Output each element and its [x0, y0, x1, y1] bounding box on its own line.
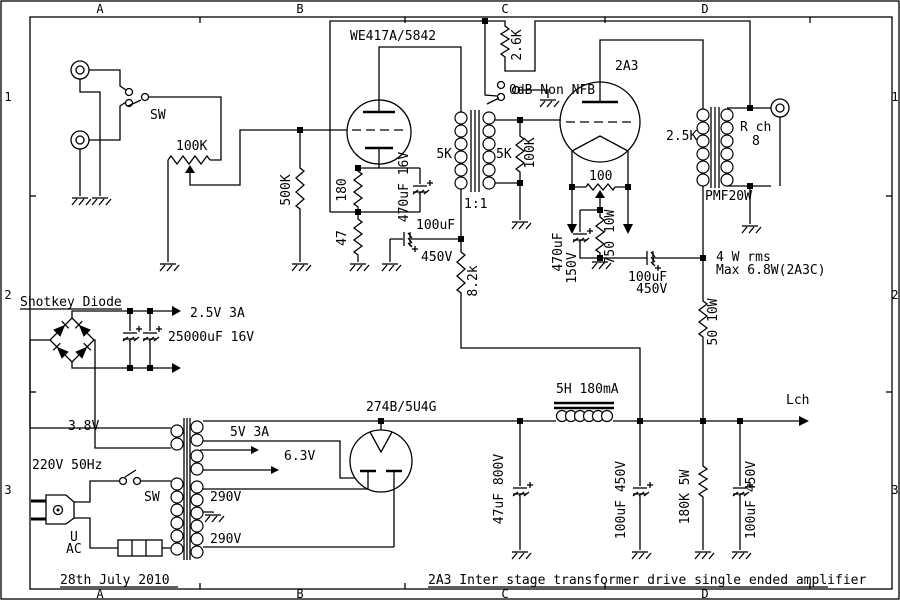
schematic-canvas: A B C D A B C D 1 2 3 1 2 3 28th July 20…: [0, 0, 900, 600]
fuse: [118, 540, 162, 556]
out-left-label: Lch: [786, 393, 809, 408]
cathode-cap-470uf: [413, 186, 429, 194]
heater-arrow: [271, 466, 279, 474]
ground-symbol: [382, 264, 401, 271]
grid-col-c-top: C: [501, 2, 508, 16]
grid-row-3-left: 3: [4, 483, 11, 497]
2a3-label: 2A3: [615, 59, 638, 74]
hum-pot-label: 100: [589, 169, 612, 184]
supply-arrow: [172, 363, 181, 373]
filament-supply-label: 2.5V 3A: [190, 306, 245, 321]
ground-symbol: [512, 222, 531, 229]
input-jack-1: [71, 61, 89, 79]
cathode-r2-label: 47: [335, 230, 350, 246]
ground-symbol: [350, 264, 369, 271]
ground-symbol: [540, 100, 559, 107]
out-channel-label: R ch: [740, 120, 771, 135]
supply-arrow: [172, 306, 181, 316]
ground-symbol: [92, 198, 111, 205]
opt-model-label: PMF20W: [705, 189, 752, 204]
grid-col-d-bottom: D: [701, 587, 708, 600]
filament-cap: [123, 333, 139, 341]
schematic-page: A B C D A B C D 1 2 3 1 2 3 28th July 20…: [0, 0, 900, 600]
winding-5-label: 5V 3A: [230, 425, 269, 440]
cathode-c3-voltage: 150V: [565, 252, 580, 283]
grid-col-b-top: B: [296, 2, 303, 16]
rect-tube-label: 274B/5U4G: [366, 400, 437, 415]
input-jack-2: [71, 131, 89, 149]
decouple-r2-label: 50 10W: [706, 298, 721, 345]
filter-cap-100uf-b: 100uF 450V: [732, 421, 759, 559]
rectifier-label: Shotkey Diode: [20, 295, 122, 310]
selector-lever: [128, 100, 141, 106]
mains-label: 220V 50Hz: [32, 458, 102, 473]
grid-col-a-top: A: [96, 2, 104, 16]
lch-arrow: [799, 416, 809, 426]
decouple-c1-value: 100uF: [416, 218, 455, 233]
ground-symbol: [205, 515, 224, 522]
winding-63-label: 6.3V: [284, 449, 315, 464]
title-text: 2A3 Inter stage transformer drive single…: [428, 573, 866, 588]
filter-c1-label: 47uF 800V: [492, 454, 507, 525]
ground-symbol: [512, 552, 531, 559]
ground-symbol: [732, 552, 751, 559]
grid-col-d-top: D: [701, 2, 708, 16]
filament: [370, 432, 392, 452]
grid-r1-label: 500K: [279, 174, 294, 205]
we417a-label: WE417A/5842: [350, 29, 436, 44]
grid-row-2-right: 2: [891, 288, 898, 302]
grid-row-3-right: 3: [891, 483, 898, 497]
winding-38-label: 3.8V: [68, 419, 99, 434]
date-text: 28th July 2010: [60, 573, 170, 588]
choke: 5H 180mA: [554, 382, 619, 422]
bplus-rail: Lch 5H 180mA 47uF 800V 100uF 450V 180K 5…: [203, 382, 809, 559]
volume-pot-label: 100K: [176, 139, 207, 154]
speaker-jack: [771, 99, 789, 117]
it-ratio-label: 1:1: [464, 197, 487, 212]
cathode-c3-value: 470uF: [551, 232, 566, 271]
decouple-cap-100uf: [404, 232, 412, 247]
grid-resistor-500k: 500K: [279, 127, 311, 271]
filament: [572, 136, 628, 151]
mains-plug: [46, 495, 74, 524]
drop-r-label: 8.2k: [466, 265, 481, 296]
it-primary-label: 5K: [436, 147, 452, 162]
input-section: SW: [71, 61, 221, 205]
grid-r2-label: 100K: [523, 137, 538, 168]
cathode-network-2a3: 100 470uF 150V 750 10W 100uF 450V: [551, 169, 703, 297]
volume-pot: 100K: [160, 130, 347, 271]
bleeder-resistor: 180K 5W: [678, 421, 714, 559]
wiper-arrow: [595, 190, 605, 198]
shotkey-bridge: Shotkey Diode 2.5V 3A 25000uF 16V 3.8V: [20, 295, 254, 448]
plug-label-ac: AC: [66, 542, 82, 557]
power-transformer: 5V 3A 6.3V 290V 290V: [171, 418, 394, 560]
out-impedance-label: 8: [752, 134, 760, 149]
winding-290a-label: 290V: [210, 490, 241, 505]
drawing-frame: A B C D A B C D 1 2 3 1 2 3 28th July 20…: [1, 1, 899, 600]
nfb-switch-lever: [487, 98, 499, 104]
decouple-c2-voltage: 450V: [636, 282, 667, 297]
choke-label: 5H 180mA: [556, 382, 619, 397]
grid-row-2-left: 2: [4, 288, 11, 302]
filter-c2-label: 100uF 450V: [614, 461, 629, 539]
ground-symbol: [742, 226, 761, 233]
input-switch-label: SW: [150, 108, 166, 123]
filament-supply-arrow: [567, 224, 577, 234]
filament-cap: [143, 333, 159, 341]
cathode-network-driver: 180 470uF 16V 47: [330, 152, 433, 271]
filament-supply-arrow: [623, 224, 633, 234]
filter-c3-label: 100uF 450V: [744, 461, 759, 539]
filament-cap-label: 25000uF 16V: [168, 330, 254, 345]
ground-symbol: [160, 264, 179, 271]
filter-cap-100uf-a: 100uF 450V: [614, 421, 653, 559]
2a3-tube: 2A3: [560, 40, 703, 187]
wiper-arrow: [185, 165, 195, 173]
mains-input: 220V 50Hz U AC SW: [31, 458, 171, 557]
cathode-cap-470uf-150v: [573, 234, 589, 242]
grid-col-a-bottom: A: [96, 587, 104, 600]
bleeder-r-label: 180K 5W: [678, 469, 693, 524]
cathode-c1-label: 470uF 16V: [397, 152, 412, 223]
heater-arrow: [251, 446, 259, 454]
decouple-c1-voltage: 450V: [421, 250, 452, 265]
power-note-2: Max 6.8W(2A3C): [716, 263, 826, 278]
ground-symbol: [632, 552, 651, 559]
grid-row-1-right: 1: [891, 90, 898, 104]
filter-cap-47uf: 47uF 800V: [492, 421, 533, 559]
grid-row-1-left: 1: [4, 90, 11, 104]
fb-switch-label: 0dB Non NFB: [509, 83, 595, 98]
ground-symbol: [695, 552, 714, 559]
winding-290b-label: 290V: [210, 532, 241, 547]
ground-symbol: [292, 264, 311, 271]
output-transformer: 2.5K PMF20W R ch 8: [666, 99, 789, 261]
cathode-r3-label: 750 10W: [603, 209, 618, 264]
fb-resistor-label: 2.6K: [510, 29, 525, 60]
mains-switch-lever: [125, 470, 136, 477]
mains-switch-label: SW: [144, 490, 160, 505]
rectifier-tube: 274B/5U4G: [203, 400, 437, 547]
opt-primary-label: 2.5K: [666, 129, 697, 144]
it-secondary-label: 5K: [496, 147, 512, 162]
ground-symbol: [72, 198, 91, 205]
grid-col-b-bottom: B: [296, 587, 303, 600]
grid-col-c-bottom: C: [501, 587, 508, 600]
cathode-r1-label: 180: [335, 178, 350, 201]
